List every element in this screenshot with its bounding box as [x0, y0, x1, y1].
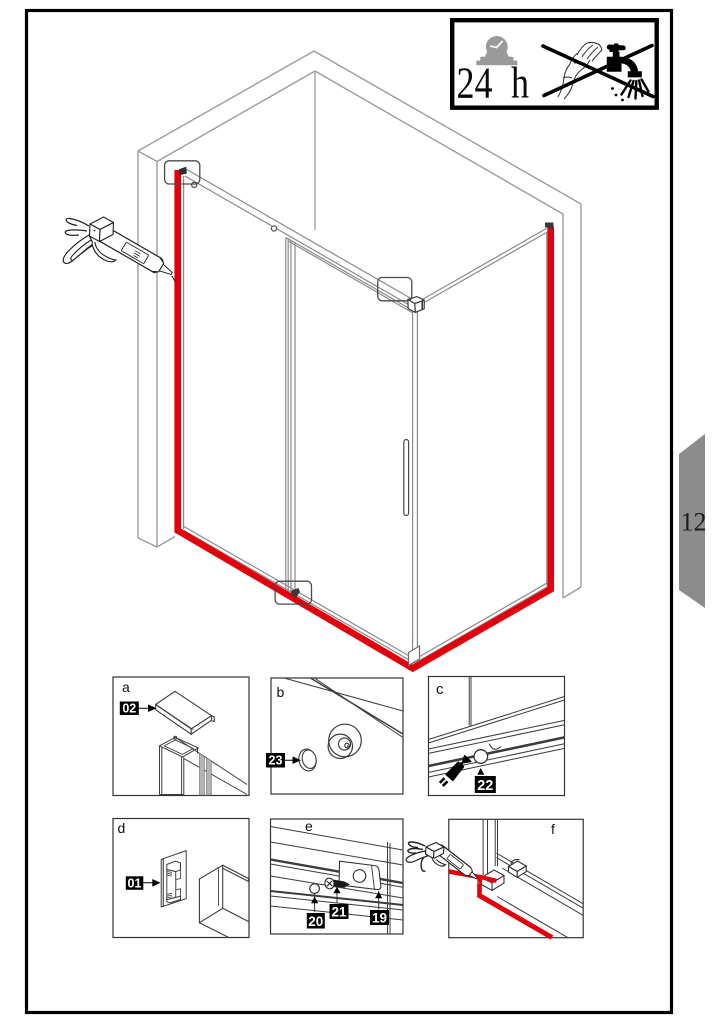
svg-text:d: d — [118, 820, 126, 836]
svg-text:12: 12 — [681, 508, 707, 537]
svg-text:c: c — [436, 681, 444, 698]
svg-text:19: 19 — [372, 910, 387, 925]
svg-text:20: 20 — [308, 914, 323, 929]
svg-text:b: b — [277, 684, 285, 700]
svg-text:a: a — [122, 679, 130, 695]
svg-text:e: e — [305, 818, 313, 834]
svg-text:22: 22 — [477, 778, 493, 794]
svg-text:21: 21 — [331, 904, 347, 919]
svg-text:23: 23 — [269, 754, 283, 768]
svg-text:h: h — [511, 59, 529, 108]
svg-text:f: f — [551, 821, 555, 837]
svg-text:02: 02 — [122, 702, 136, 716]
svg-text:01: 01 — [128, 876, 142, 890]
svg-text:24: 24 — [457, 59, 493, 108]
